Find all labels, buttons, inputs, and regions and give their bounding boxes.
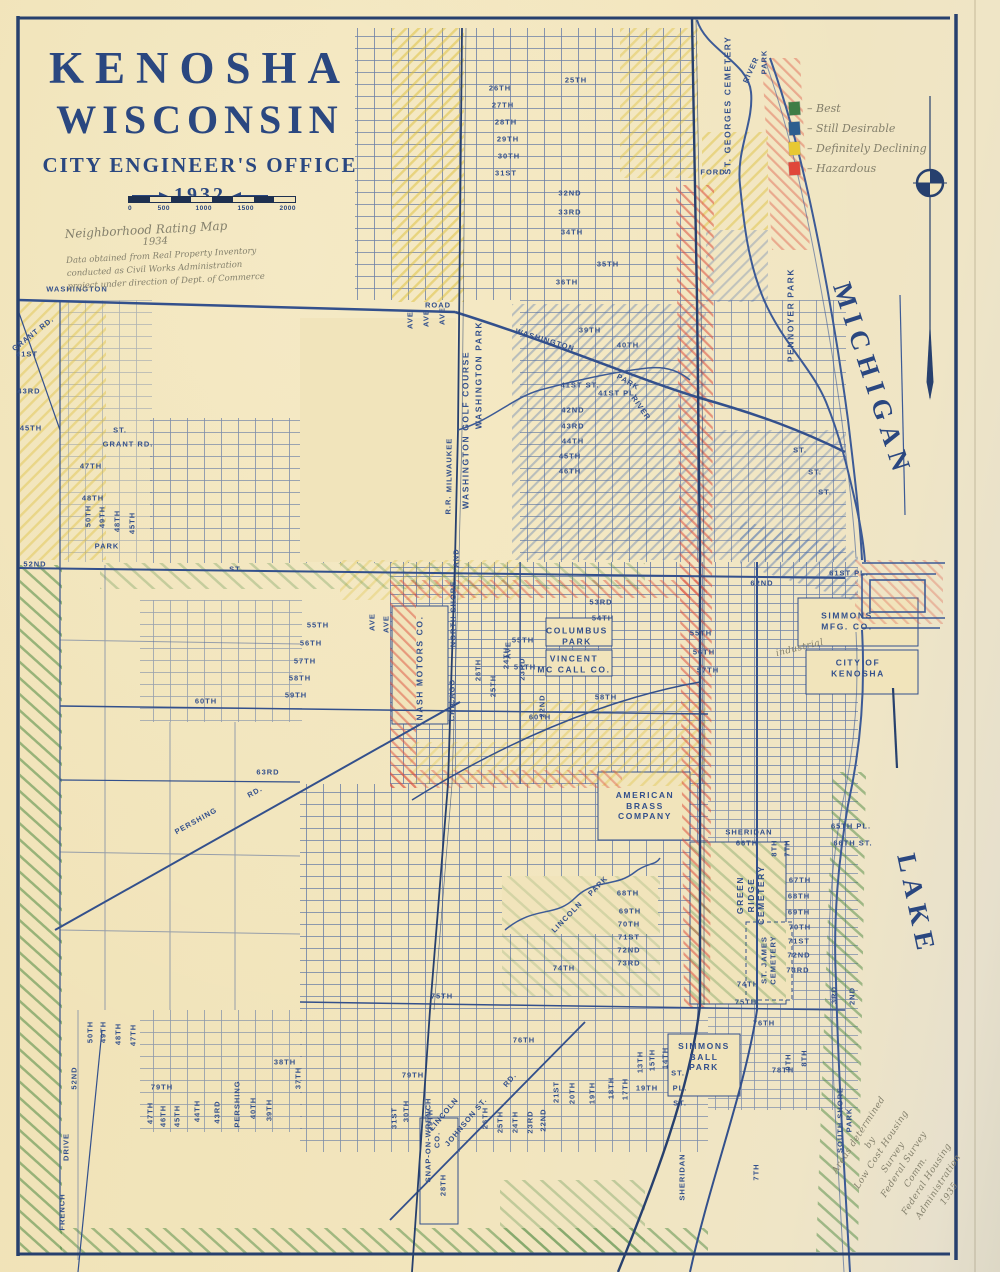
map-label: 21ST [551,1081,560,1103]
map-label: LAKE [889,850,944,959]
map-label: SHERIDAN [725,827,772,836]
map-label: CITY OF KENOSHA [831,657,885,678]
map-label: 17TH [620,1078,629,1100]
map-label: 68TH [617,888,639,897]
map-label: NORTH SHORE [448,581,457,647]
map-label: 39TH [264,1099,273,1121]
map-label: 70TH [789,922,811,931]
scale-bar: 0500100015002000 [128,196,296,212]
map-label: 57TH [697,665,719,674]
map-label: 60TH [529,712,551,721]
map-label: 44TH [562,436,584,445]
map-label: 48TH [113,1023,122,1045]
map-label: 19TH [587,1082,596,1104]
map-label: 49TH [98,1021,107,1043]
map-label: 31ST [495,168,517,177]
map-label: 74TH [553,963,575,972]
scale-numbers: 0500100015002000 [128,205,296,212]
map-label: AVE [367,613,376,631]
map-label: 47TH [80,461,102,470]
map-label: 43RD [561,421,584,430]
map-label: 47TH [128,1024,137,1046]
map-label: 43RD [212,1100,221,1123]
map-label: 71ST [618,932,640,941]
map-label: 56TH [300,638,322,647]
map-label: 79TH [402,1070,424,1079]
map-label: 42ND [561,405,584,414]
map-label: ST. JAMES CEMETERY [760,935,779,984]
map-label: 41ST PL. [598,388,638,397]
map-label: 52ND [69,1066,78,1089]
map-label: 33RD [558,207,581,216]
title-block: KENOSHA WISCONSIN CITY ENGINEER'S OFFICE… [40,42,360,207]
legend-item: – Definitely Declining [789,138,979,158]
map-label: 78TH [772,1065,794,1074]
map-label: 45TH [172,1105,181,1127]
map-label: 50TH [83,505,92,527]
map-label: COLUMBUS PARK [546,625,608,646]
legend-swatch [789,161,801,175]
map-label: 55TH [690,628,712,637]
map-label: ST. [808,467,822,476]
legend: – Best– Still Desirable– Definitely Decl… [789,98,979,178]
map-label: 68TH [788,891,810,900]
map-label: 66TH [736,838,758,847]
map-label: 61ST PL. [829,568,869,577]
scale-segment [191,197,212,202]
map-label: AVE [381,615,390,633]
map-label: 2ND [847,987,856,1005]
map-label: ST. [229,564,243,573]
paper-crease [974,0,976,1272]
map-label: 40TH [617,340,639,349]
map-label: 40TH [248,1097,257,1119]
scale-tick: 2000 [279,205,295,212]
map-label: 19TH [636,1083,658,1092]
map-title-city: KENOSHA [40,42,360,94]
map-label: 70TH [618,919,640,928]
map-label: 59TH [285,690,307,699]
map-label: 44TH [192,1100,201,1122]
map-label: 69TH [788,907,810,916]
map-label: AND [451,548,460,567]
map-label: 50TH [85,1021,94,1043]
map-label: 26TH [489,83,511,92]
scale-segment [212,197,233,202]
scale-tick: 500 [158,205,170,212]
map-label: 41ST ST. [561,380,600,389]
scale-segment [233,197,254,202]
map-label: 73RD [617,958,640,967]
map-label: DRIVE [61,1133,70,1161]
map-label: AVE [437,307,446,325]
map-label: 75TH [431,991,453,1000]
map-label: PL. [673,1083,688,1092]
map-label: FRENCH [57,1193,66,1230]
map-label: ST. [671,1068,685,1077]
map-label: SHERIDAN [677,1153,686,1200]
map-label: 20TH [567,1082,576,1104]
map-label: 48TH [112,510,121,532]
map-label: RIVER [741,55,761,84]
map-label: 43RD [17,386,40,395]
map-label: PERSHING [173,805,219,836]
map-label: 38TH [274,1057,296,1066]
map-label: SIMMONS MFG. CO. [821,610,873,631]
map-label: RD. [501,1071,518,1089]
map-label: 25TH [488,675,497,697]
map-label: ST. [818,487,832,496]
legend-label: – Best [807,102,841,115]
map-label: 72ND [787,950,810,959]
map-label: 28TH [495,117,517,126]
map-label: GRANT RD. [10,315,56,354]
map-label: CHICAGO [447,679,456,721]
map-label: 57TH [294,656,316,665]
map-label: PARK [95,541,120,550]
map-label: 55TH [307,620,329,629]
scale-tick: 0 [128,205,132,212]
map-label: 75TH [735,997,757,1006]
map-label: 28TH [438,1174,447,1196]
map-label: 46TH [158,1105,167,1127]
map-label: 23RD [517,657,526,680]
legend-swatch [789,141,801,155]
legend-swatch [789,121,801,135]
map-label: 55TH [512,635,534,644]
map-label: 58TH [289,673,311,682]
map-label: 62ND [750,578,773,587]
map-label: SIMMONS BALL PARK [678,1041,730,1073]
map-label: 34TH [561,227,583,236]
map-label: PENNOYER PARK [786,268,797,362]
map-label: 66TH ST. [833,838,872,847]
map-label: 18TH [606,1077,615,1099]
map-label: 23RD [525,1110,534,1133]
map-label: 63RD [256,767,279,776]
map-label: NASH MOTORS CO. [415,615,426,720]
map-label: 45TH [127,512,136,534]
map-label: WASHINGTON GOLF COURSE [461,351,472,509]
map-label: 26TH [473,659,482,681]
map-label: ST. GEORGES CEMETERY [723,36,734,175]
map-label: 39TH [579,325,601,334]
map-label: AVE [421,309,430,327]
map-label: ST. [113,425,127,434]
map-label: 74TH [737,979,759,988]
scale-segment [129,197,150,202]
map-label: 29TH [425,1109,434,1131]
map-label: ST. [793,445,807,454]
map-label: FORD [700,167,725,176]
map-label: 46TH [559,466,581,475]
map-label: industrial [775,637,826,662]
scale-tick: 1000 [196,205,212,212]
map-label: 76TH [753,1018,775,1027]
map-label: 22ND [538,1108,547,1131]
map-label: 79TH [151,1082,173,1091]
map-label: RD. [246,784,264,800]
map-label: RIVER [629,394,653,422]
map-label: 30TH [498,151,520,160]
map-label: AVE [405,311,414,329]
map-label: 31ST [389,1107,398,1129]
map-label: 60TH [195,696,217,705]
map-label: 30TH [401,1100,410,1122]
map-label: 49TH [97,506,106,528]
map-label: 53RD [589,597,612,606]
map-label: R.R. [443,496,452,515]
map-label: 14TH [660,1047,669,1069]
map-label: WASHINGTON [514,327,576,354]
map-label: 7TH [751,1163,760,1180]
map-label: 24TH [510,1111,519,1133]
map-label: GREEN RIDGE CEMETERY [735,865,767,925]
legend-label: – Hazardous [807,162,876,175]
map-label: LINCOLN [550,899,585,935]
map-label: 72ND [617,945,640,954]
scale-segment [171,197,192,202]
scale-bar-segments [128,196,296,203]
map-label: 54TH [592,613,614,622]
map-label: 27TH [492,100,514,109]
map-sheet: WASHINGTONGRANT RD.41ST43RD45THST.GRANT … [0,0,1000,1272]
legend-item: – Still Desirable [789,118,979,138]
map-label: AMERICAN BRASS COMPANY [616,790,675,822]
map-label: PERSHING [232,1080,241,1127]
map-label: 47TH [145,1102,154,1124]
map-label: 65TH PL. [831,821,871,830]
legend-item: – Hazardous [789,158,979,178]
scale-segment [274,197,295,202]
legend-item: – Best [789,98,979,118]
map-label: 13TH [635,1051,644,1073]
map-subtitle: CITY ENGINEER'S OFFICE [40,153,360,178]
scale-tick: 1500 [238,205,254,212]
map-label: 37TH [293,1067,302,1089]
legend-label: – Definitely Declining [807,142,927,155]
map-label: 7TH [782,839,791,856]
map-label: PARK [759,50,768,75]
surveyor-note: Neighborhood Rating Map 1934 Data obtain… [64,213,337,295]
map-label: 45TH [20,423,42,432]
map-label: WASHINGTON PARK [474,321,485,429]
map-label: AVE [503,641,512,659]
map-label: 69TH [619,906,641,915]
map-label: 26TH [480,1107,489,1129]
map-label: 52ND [23,559,46,568]
map-label: 48TH [82,493,104,502]
map-label: 25TH [565,75,587,84]
map-label: 3RD [829,986,838,1004]
map-label: 15TH [647,1049,656,1071]
map-label: 36TH [556,277,578,286]
map-label: 45TH [559,451,581,460]
map-title-state: WISCONSIN [40,96,360,143]
legend-label: – Still Desirable [807,122,895,135]
map-label: 32ND [558,188,581,197]
map-label: 35TH [597,259,619,268]
map-label: ST. [673,1098,687,1107]
map-label: 76TH [513,1035,535,1044]
scale-segment [254,197,275,202]
map-label: 41ST [16,349,38,358]
map-label: 58TH [595,692,617,701]
map-label: 73RD [786,965,809,974]
map-label: PARK [586,874,610,898]
map-label: VINCENT MC CALL CO. [537,653,610,674]
map-label: GRANT RD. [103,439,154,448]
legend-swatch [789,101,801,115]
map-label: 25TH [495,1111,504,1133]
map-label: 71ST [788,936,810,945]
scale-segment [150,197,171,202]
map-label: 29TH [497,134,519,143]
map-label: 8TH [799,1049,808,1066]
map-label: 67TH [789,875,811,884]
map-label: MILWAUKEE [444,438,453,492]
map-label: 8TH [769,839,778,856]
map-label: MICHIGAN [825,278,920,481]
map-label: 56TH [693,647,715,656]
